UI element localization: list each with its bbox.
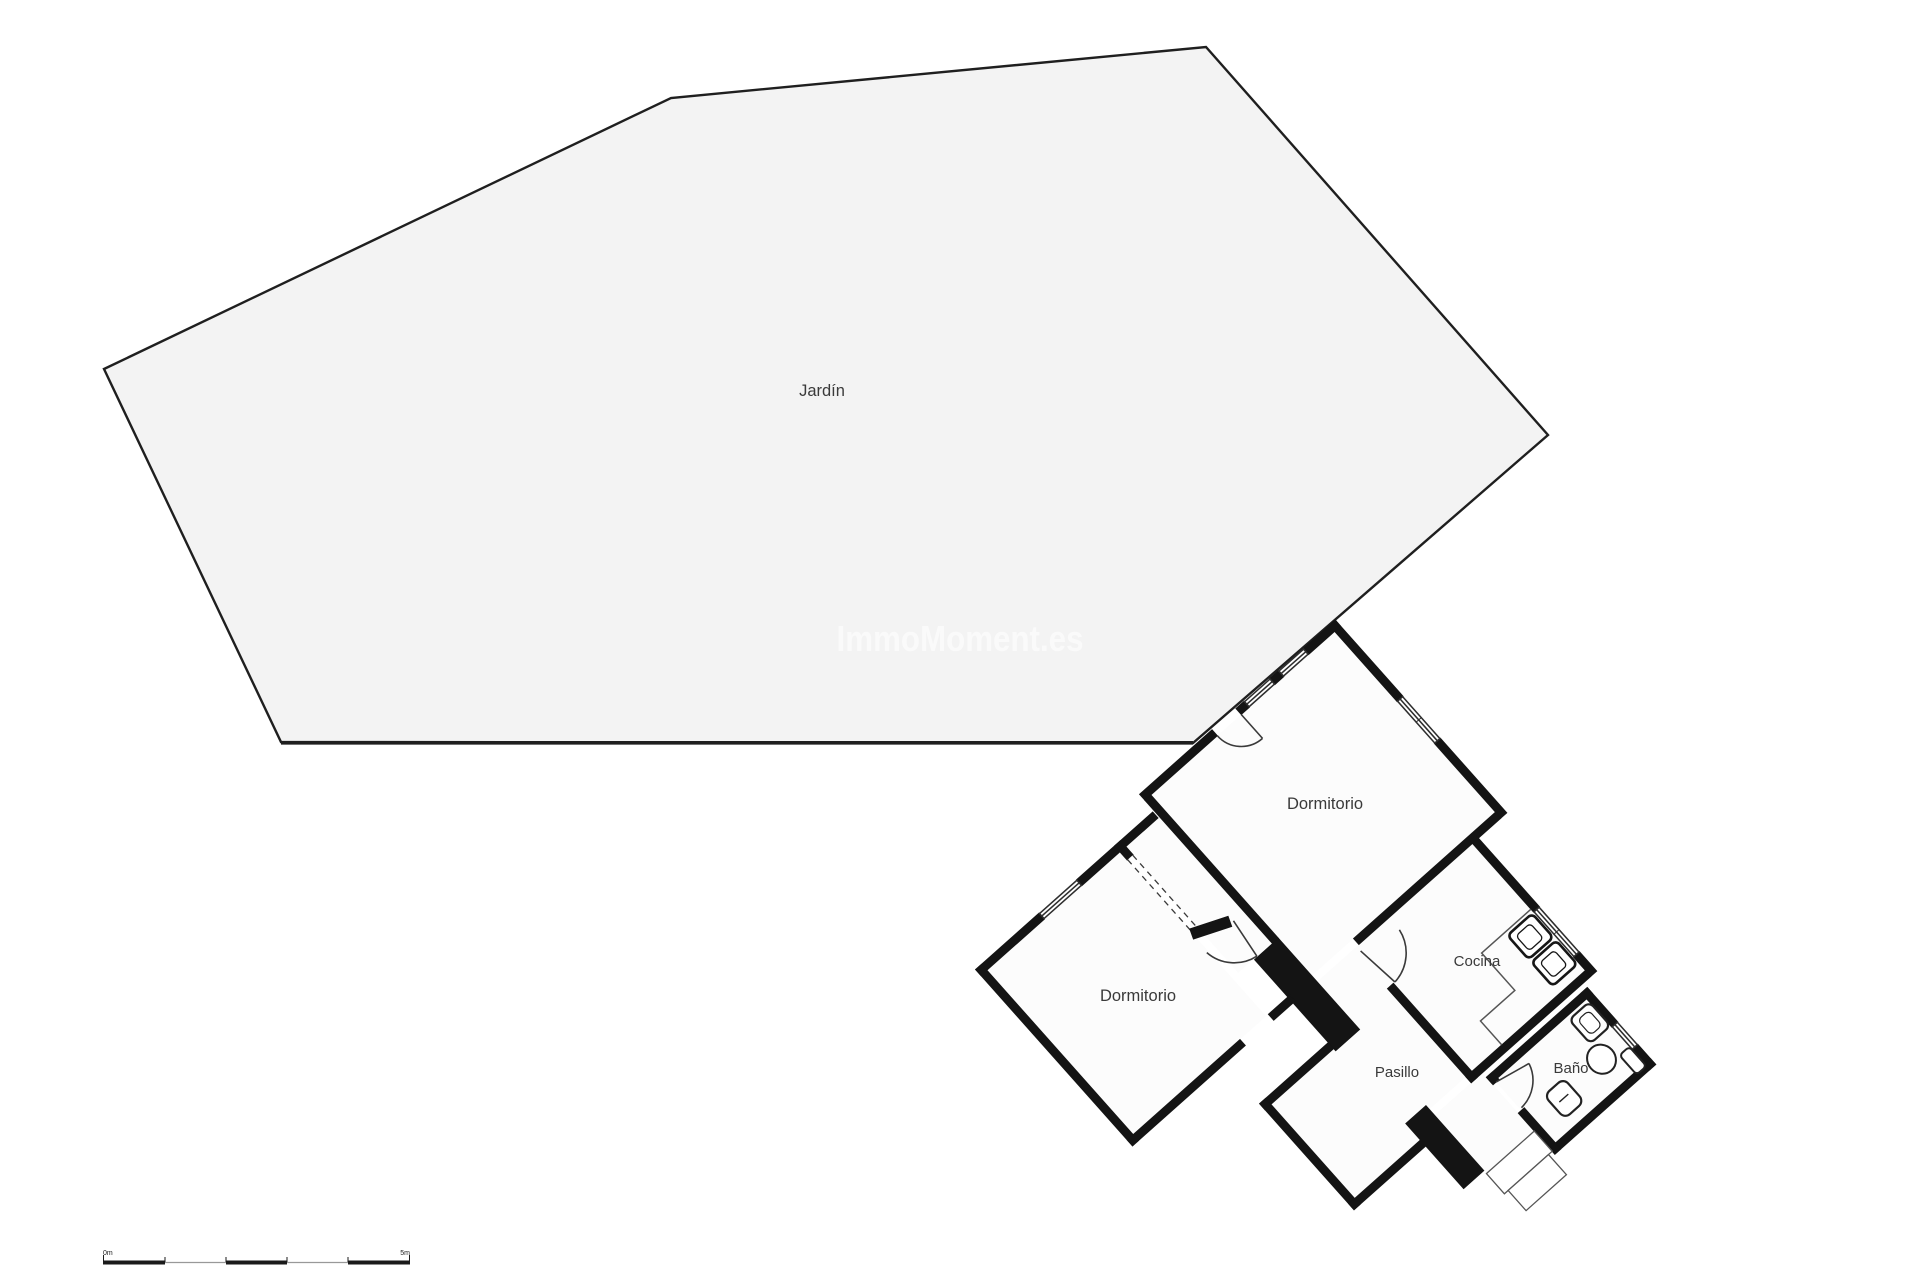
- svg-text:Pasillo: Pasillo: [1375, 1064, 1419, 1081]
- svg-text:Cocina: Cocina: [1454, 953, 1501, 970]
- svg-text:0m: 0m: [103, 1250, 113, 1257]
- svg-text:Baño: Baño: [1553, 1060, 1588, 1077]
- svg-text:5m: 5m: [400, 1250, 410, 1257]
- svg-text:Dormitorio: Dormitorio: [1100, 987, 1176, 1005]
- svg-text:Jardín: Jardín: [799, 382, 845, 400]
- svg-text:ImmoMoment.es: ImmoMoment.es: [837, 618, 1084, 659]
- svg-text:Dormitorio: Dormitorio: [1287, 795, 1363, 813]
